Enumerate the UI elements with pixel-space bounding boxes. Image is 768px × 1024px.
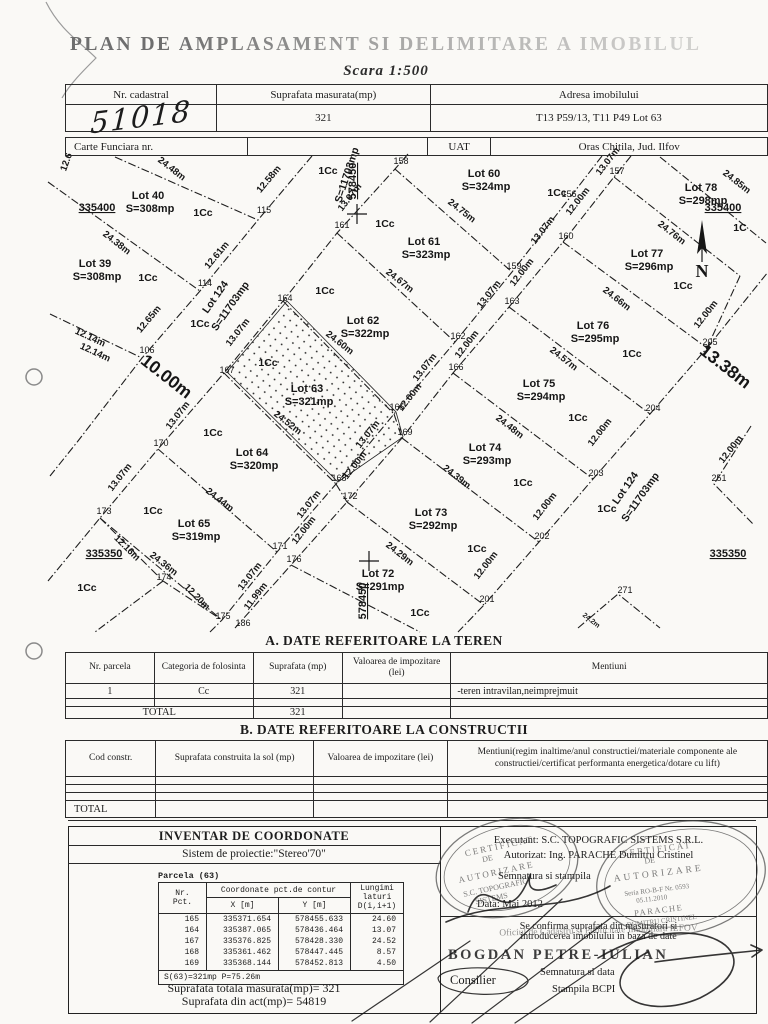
map-label: 162 <box>450 331 465 341</box>
col-suprafata: Suprafata masurata(mp) <box>217 85 431 105</box>
map-label: 176 <box>286 554 301 564</box>
cell: 335376.825 <box>207 936 279 947</box>
map-label: 12.00m <box>586 416 615 448</box>
map-label: 169 <box>397 427 412 437</box>
map-label: 24.39m <box>440 463 472 492</box>
map-label: 168 <box>331 473 346 483</box>
cell: 578452.813 <box>279 958 351 970</box>
empty-row <box>66 777 768 785</box>
cell: 578455.633 <box>279 913 351 925</box>
col-adresa: Adresa imobilului <box>430 85 767 105</box>
b-h-mentiuni: Mentiuni(regim inaltime/anul constructie… <box>447 741 767 777</box>
a-h-valoarea: Valoarea de impozitare (lei) <box>342 653 450 684</box>
autorizat-line: Autorizat: Ing. PARACHE Dumitru Cristine… <box>440 850 757 861</box>
map-label: 1Cc <box>77 582 96 594</box>
a-total-label: TOTAL <box>66 707 254 719</box>
cell: 164 <box>159 925 207 936</box>
cell: 13.07 <box>351 925 404 936</box>
cell: 24.60 <box>351 913 404 925</box>
cadastral-number-cell: 51018 <box>66 105 217 132</box>
carte-funciara-value <box>247 138 427 156</box>
map-label: 173 <box>96 506 111 516</box>
map-label: 106 <box>139 345 154 355</box>
map-label: 13.07m <box>529 214 558 246</box>
map-label: 163 <box>504 296 519 306</box>
cell: 335368.144 <box>207 958 279 970</box>
map-label: 186 <box>235 618 250 628</box>
map-label: 24.29m <box>383 540 415 569</box>
map-label: 1Cc <box>318 165 337 177</box>
total-act: Suprafata din act(mp)= 54819 <box>68 994 440 1009</box>
map-label: 164 <box>277 293 292 303</box>
map-label: 13.07m <box>475 278 504 310</box>
map-label: S=321mp <box>285 396 334 408</box>
semnatura-stampila-label: Semnatura si stampila <box>498 871 591 882</box>
b-h-suprafata: Suprafata construita la sol (mp) <box>156 741 314 777</box>
empty-row <box>66 793 768 801</box>
map-label: 1Cc <box>315 285 334 297</box>
map-label: Lot 77 <box>631 248 663 260</box>
table-row: 1Cc321-teren intravilan,neimprejmuit <box>66 684 768 699</box>
section-a-heading: A. DATE REFERITOARE LA TEREN <box>0 633 768 649</box>
map-label: 251 <box>711 473 726 483</box>
map-label: S=320mp <box>230 460 279 472</box>
map-label: 1Cc <box>597 503 616 515</box>
map-label: 1Cc <box>190 318 209 330</box>
map-label: S=323mp <box>402 249 451 261</box>
map-label: S=292mp <box>409 520 458 532</box>
map-label: Lot 39 <box>79 258 111 270</box>
map-label: Lot 78 <box>685 182 717 194</box>
map-label: 115 <box>257 205 271 215</box>
map-scale: Scara 1:500 <box>70 63 702 80</box>
map-label: 335350 <box>86 548 123 560</box>
inventar-subtitle: Sistem de proiectie:"Stereo'70" <box>68 848 440 860</box>
cell: 4.50 <box>351 958 404 970</box>
map-label: 202 <box>534 531 549 541</box>
handwritten-cadastral-number: 51018 <box>90 100 193 133</box>
cell: 167 <box>159 936 207 947</box>
map-label: 1Cc <box>467 543 486 555</box>
b-h-cod: Cod constr. <box>66 741 156 777</box>
map-label: 172 <box>342 491 357 501</box>
rule <box>440 916 757 917</box>
map-label: 1Cc <box>193 207 212 219</box>
scanned-cadastral-document: N Lot 40S=308mpLot 39S=308mpLot 60S=324m… <box>0 0 768 1024</box>
map-label: 24.44m <box>203 486 235 515</box>
map-label: 12.61m <box>203 240 232 272</box>
north-arrow: N <box>696 220 709 281</box>
map-label: S=296mp <box>625 261 674 273</box>
map-label: S=322mp <box>341 328 390 340</box>
map-label: 170 <box>153 438 168 448</box>
map-label: 167 <box>219 365 234 375</box>
stampila-bcpi-label: Stampila BCPI <box>552 984 615 995</box>
cell: 24.52 <box>351 936 404 947</box>
map-label: S=308mp <box>73 271 122 283</box>
map-label: 1Cc <box>258 357 277 369</box>
map-label: 578450 <box>357 583 369 620</box>
map-label: 24.2m <box>581 612 601 630</box>
a-h-mentiuni: Mentiuni <box>451 653 768 684</box>
map-label: 13.07m <box>411 351 440 383</box>
map-label: 114 <box>198 278 212 288</box>
cell: -teren intravilan,neimprejmuit <box>451 684 768 699</box>
coordinate-row: 169335368.144578452.8134.50 <box>159 958 404 970</box>
punch-hole <box>26 369 42 385</box>
inventar-title: INVENTAR DE COORDONATE <box>68 829 440 844</box>
map-labels: Lot 40S=308mpLot 39S=308mpLot 60S=324mpL… <box>58 145 755 629</box>
cell: 335371.654 <box>207 913 279 925</box>
map-label: 24.48m <box>493 413 525 442</box>
inv-h-nr: Nr. Pct. <box>159 883 207 914</box>
section-b-heading: B. DATE REFERITOARE LA CONSTRUCTII <box>0 722 768 738</box>
map-label: 171 <box>272 541 287 551</box>
inv-h-len: Lungimi laturi D(i,i+1) <box>351 883 404 914</box>
map-label: 12.00m <box>717 433 746 465</box>
map-label: 174 <box>156 572 171 582</box>
map-label: 1Cc <box>410 607 429 619</box>
map-label: 1Cc <box>143 505 162 517</box>
cell: 578428.330 <box>279 936 351 947</box>
map-label: 159 <box>506 261 521 271</box>
map-label: Lot 65 <box>178 518 210 530</box>
map-label: 166 <box>448 362 463 372</box>
uat-label: UAT <box>427 138 491 156</box>
map-label: Lot 40 <box>132 190 164 202</box>
parcela-label: Parcela (63) <box>158 871 219 881</box>
cell: 168 <box>159 947 207 958</box>
map-label: 204 <box>645 403 660 413</box>
coordinate-row: 167335376.825578428.33024.52 <box>159 936 404 947</box>
map-label: S=324mp <box>462 181 511 193</box>
cell: 165 <box>159 913 207 925</box>
map-label: 335400 <box>705 202 742 214</box>
map-label: 13.07m <box>106 461 135 493</box>
carte-funciara-label: Carte Funciara nr. <box>66 138 248 156</box>
map-label: 12.20m <box>181 582 212 613</box>
map-label: 24.76m <box>655 219 687 248</box>
land-data-table: Nr. parcela Categoria de folosinta Supra… <box>65 652 768 719</box>
map-label: 13.38m <box>696 340 755 392</box>
map-label: Lot 76 <box>577 320 609 332</box>
map-label: 205 <box>702 337 717 347</box>
map-label: Lot 72 <box>362 568 394 580</box>
map-label: Lot 75 <box>523 378 555 390</box>
map-label: 12.58m <box>255 164 284 196</box>
official-name-stamp: BOGDAN PETRE-IULIAN <box>448 947 668 964</box>
map-label: 175 <box>215 611 230 621</box>
map-label: 158 <box>393 156 408 166</box>
b-total-label: TOTAL <box>66 801 156 818</box>
map-label: 24.75m <box>445 197 477 226</box>
map-label: 12.00m <box>531 490 560 522</box>
map-label: Lot 63 <box>291 383 323 395</box>
map-label: 13.07m <box>164 399 193 431</box>
map-label: 165 <box>389 402 404 412</box>
map-label: 335400 <box>79 202 116 214</box>
cell: 169 <box>159 958 207 970</box>
executant-line: Executant: S.C. TOPOGRAFIC SISTEMS S.R.L… <box>440 835 757 846</box>
cell: 578447.445 <box>279 947 351 958</box>
map-label: 1Cc <box>203 427 222 439</box>
map-label: S=308mp <box>126 203 175 215</box>
north-label: N <box>696 261 709 281</box>
measured-area-cell: 321 <box>217 105 431 132</box>
map-label: S=294mp <box>517 391 566 403</box>
page-title: PLAN DE AMPLASAMENT SI DELIMITARE A IMOB… <box>70 34 702 56</box>
a-h-suprafata: Suprafata (mp) <box>253 653 342 684</box>
b-h-valoarea: Valoarea de impozitare (lei) <box>314 741 448 777</box>
address-cell: T13 P59/13, T11 P49 Lot 63 <box>430 105 767 132</box>
map-label: 1Cc <box>673 280 692 292</box>
cell: 8.57 <box>351 947 404 958</box>
empty-row <box>66 699 768 707</box>
coordinate-row: 168335361.462578447.4458.57 <box>159 947 404 958</box>
map-label: 12.65m <box>135 304 164 336</box>
map-label: 1Cc <box>375 218 394 230</box>
map-label: Lot 60 <box>468 168 500 180</box>
cell: 1 <box>66 684 155 699</box>
semnatura-data-label: Semnatura si data <box>540 967 615 978</box>
map-label: 1C <box>733 222 747 234</box>
map-label: 24.67m <box>383 267 415 296</box>
uat-value: Oras Chitila, Jud. Ilfov <box>491 138 768 156</box>
date-line: Data: Mai 2012 <box>477 899 543 910</box>
cell: 335361.462 <box>207 947 279 958</box>
map-label: 10.00m <box>137 350 196 402</box>
map-label: 12.00m <box>692 298 721 330</box>
map-label: 203 <box>588 468 603 478</box>
cell: 578436.464 <box>279 925 351 936</box>
map-label: Lot 61 <box>408 236 440 248</box>
map-label: 1Cc <box>622 348 641 360</box>
inv-h-coord: Coordonate pct.de contur <box>207 883 351 898</box>
coordinate-row: 164335387.065578436.46413.07 <box>159 925 404 936</box>
coordinate-row: 165335371.654578455.63324.60 <box>159 913 404 925</box>
land-registry-table: Carte Funciara nr. UAT Oras Chitila, Jud… <box>65 137 768 156</box>
map-label: 160 <box>558 231 573 241</box>
map-label: 201 <box>479 594 494 604</box>
a-h-parcela: Nr. parcela <box>66 653 155 684</box>
map-label: Lot 62 <box>347 315 379 327</box>
inv-h-y: Y [m] <box>279 898 351 913</box>
map-label: Lot 74 <box>469 442 502 454</box>
map-label: 24.48m <box>155 155 187 184</box>
map-label: 24.38m <box>100 229 132 258</box>
a-h-categoria: Categoria de folosinta <box>154 653 253 684</box>
map-label: S=319mp <box>172 531 221 543</box>
map-label: 156 <box>561 189 576 199</box>
cell <box>342 684 450 699</box>
map-label: 1Cc <box>513 477 532 489</box>
map-label: 24.85m <box>720 168 752 197</box>
cell: 321 <box>253 684 342 699</box>
map-label: S=295mp <box>571 333 620 345</box>
map-label: 1Cc <box>138 272 157 284</box>
official-role: Consilier <box>450 973 496 988</box>
map-label: Lot 64 <box>236 447 269 459</box>
empty-row <box>66 785 768 793</box>
divider-line <box>68 820 756 821</box>
map-label: S=293mp <box>463 455 512 467</box>
map-label: 161 <box>334 220 349 230</box>
inv-h-x: X [m] <box>207 898 279 913</box>
constructions-table: Cod constr. Suprafata construita la sol … <box>65 740 768 818</box>
rule <box>68 845 440 846</box>
map-label: Lot 73 <box>415 507 447 519</box>
cell: 335387.065 <box>207 925 279 936</box>
map-label: 271 <box>617 585 632 595</box>
map-label: 335350 <box>710 548 747 560</box>
cell: Cc <box>154 684 253 699</box>
map-label: 1Cc <box>568 412 587 424</box>
map-label: 157 <box>609 166 624 176</box>
rule <box>68 863 440 864</box>
a-total-value: 321 <box>253 707 342 719</box>
cadastral-header-table: Nr. cadastral Suprafata masurata(mp) Adr… <box>65 84 768 132</box>
coordinates-table: Nr. Pct. Coordonate pct.de contur Lungim… <box>158 882 404 985</box>
